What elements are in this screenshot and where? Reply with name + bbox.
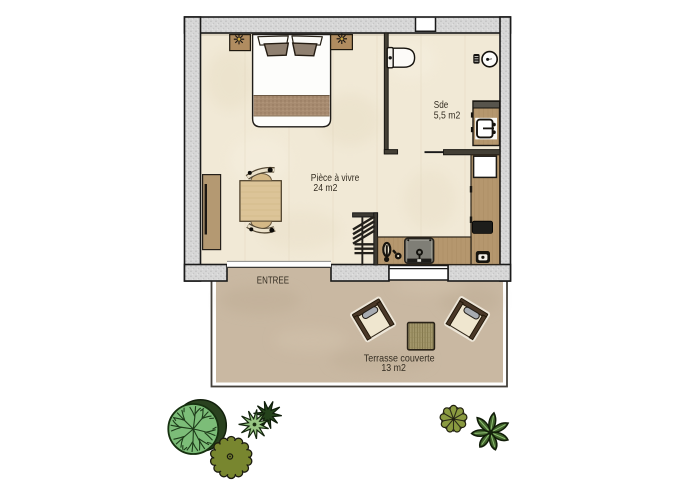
svg-text:13 m2: 13 m2 xyxy=(381,363,406,374)
svg-text:Pièce à vivre: Pièce à vivre xyxy=(311,173,360,184)
svg-text:24 m2: 24 m2 xyxy=(313,183,337,194)
svg-text:ENTREE: ENTREE xyxy=(257,275,289,286)
svg-text:5,5 m2: 5,5 m2 xyxy=(434,111,461,122)
svg-text:Sde: Sde xyxy=(434,100,449,111)
